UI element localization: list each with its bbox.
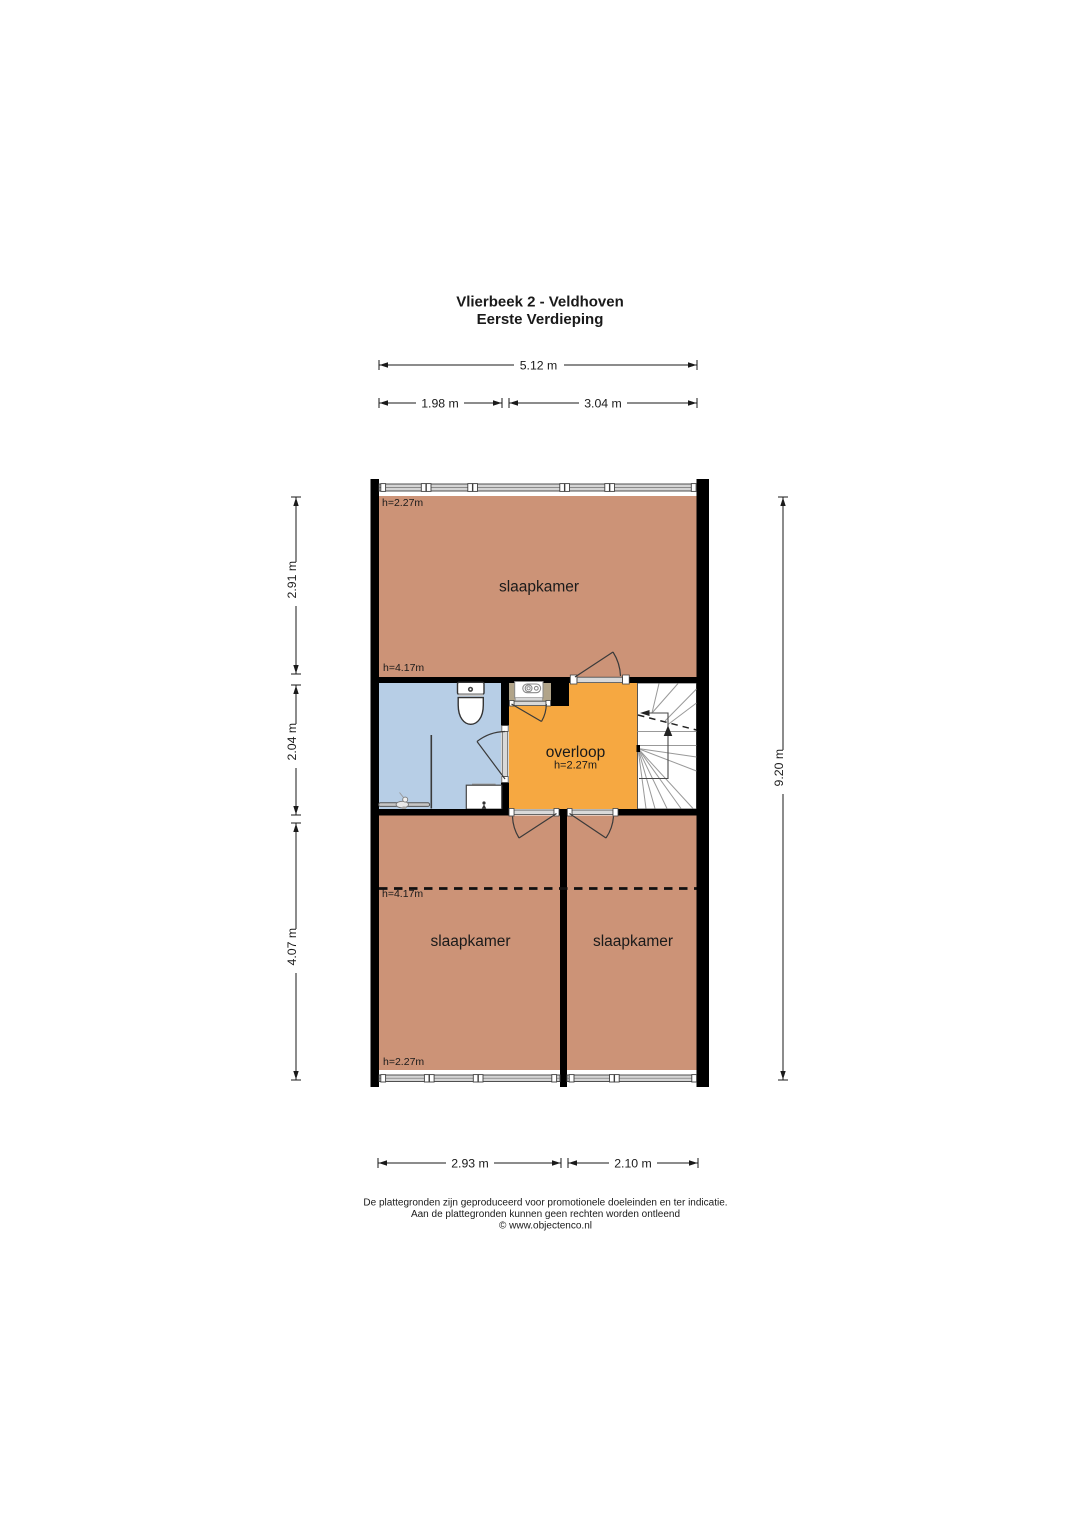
svg-text:Eerste Verdieping: Eerste Verdieping (477, 311, 604, 328)
svg-text:2.10 m: 2.10 m (614, 1156, 652, 1170)
svg-text:2.91 m: 2.91 m (285, 561, 299, 599)
svg-text:h=4.17m: h=4.17m (383, 662, 424, 674)
svg-text:h=4.17m: h=4.17m (382, 888, 423, 900)
svg-text:h=2.27m: h=2.27m (382, 497, 423, 509)
svg-text:© www.objectenco.nl: © www.objectenco.nl (499, 1221, 592, 1232)
svg-text:2.04 m: 2.04 m (285, 723, 299, 761)
svg-text:5.12 m: 5.12 m (520, 358, 558, 372)
svg-text:1.98 m: 1.98 m (421, 396, 459, 410)
svg-text:slaapkamer: slaapkamer (499, 579, 579, 596)
svg-text:3.04 m: 3.04 m (584, 396, 622, 410)
svg-text:Vlierbeek 2 - Veldhoven: Vlierbeek 2 - Veldhoven (456, 294, 624, 311)
svg-text:slaapkamer: slaapkamer (593, 933, 673, 950)
svg-text:overloop: overloop (546, 744, 605, 761)
svg-text:2.93 m: 2.93 m (451, 1156, 489, 1170)
svg-text:De plattegronden zijn geproduc: De plattegronden zijn geproduceerd voor … (363, 1198, 727, 1209)
svg-text:h=2.27m: h=2.27m (383, 1056, 424, 1068)
svg-text:Aan de plattegronden kunnen ge: Aan de plattegronden kunnen geen rechten… (411, 1209, 680, 1220)
svg-text:4.07 m: 4.07 m (285, 928, 299, 966)
svg-text:h=2.27m: h=2.27m (554, 760, 597, 772)
svg-text:9.20 m: 9.20 m (772, 749, 786, 787)
svg-text:slaapkamer: slaapkamer (430, 933, 510, 950)
